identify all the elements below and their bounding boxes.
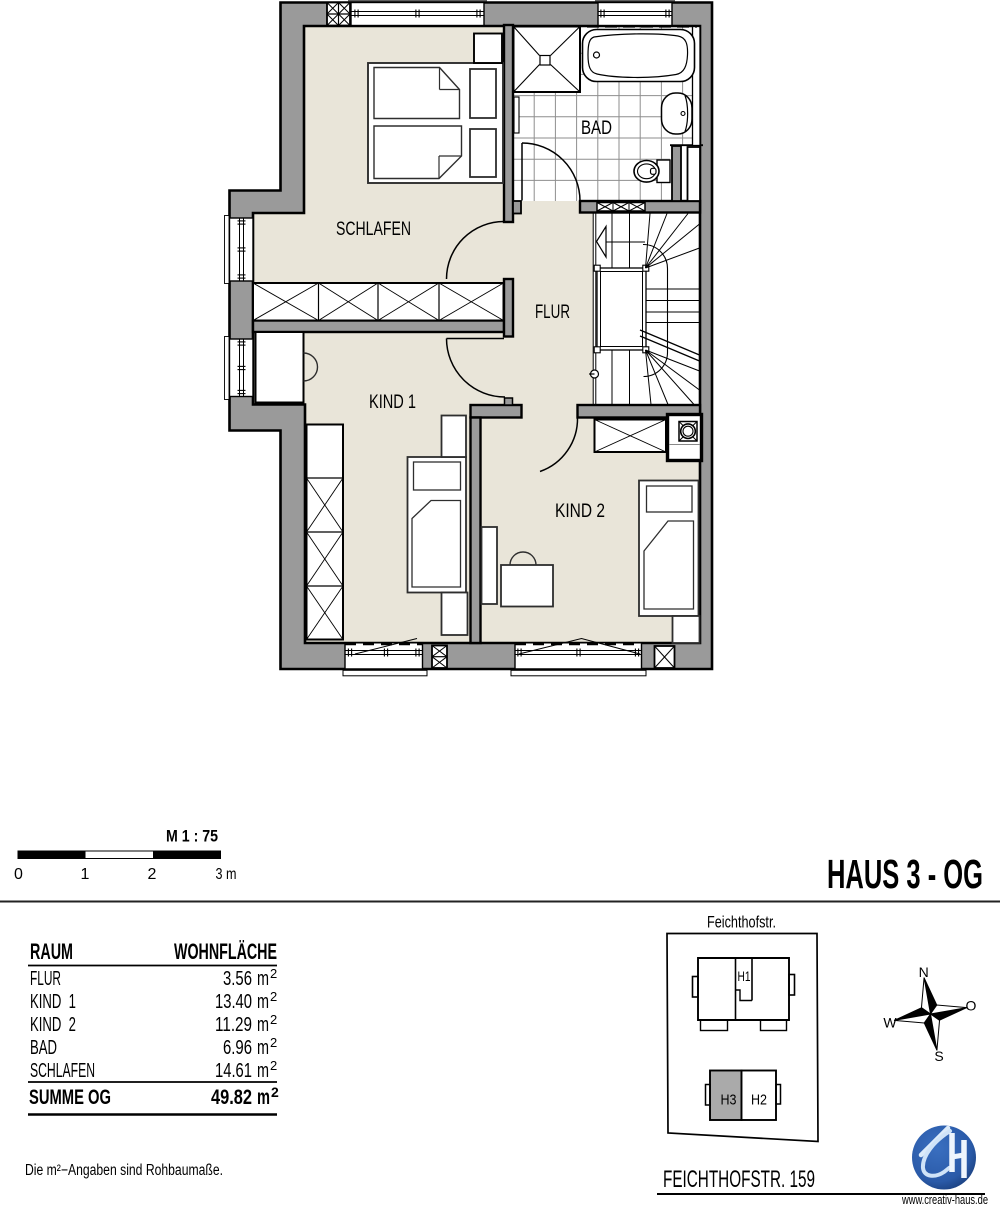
svg-text:6.96: 6.96 — [223, 1036, 252, 1059]
svg-text:11.29: 11.29 — [215, 1013, 252, 1036]
svg-text:13.40: 13.40 — [215, 990, 252, 1013]
svg-text:KIND 1: KIND 1 — [369, 392, 416, 413]
svg-text:2: 2 — [270, 1058, 277, 1073]
svg-text:m: m — [257, 1036, 269, 1059]
svg-text:Die m²−Angaben sind Rohbaumaße: Die m²−Angaben sind Rohbaumaße. — [25, 1162, 223, 1179]
svg-text:FLUR: FLUR — [535, 302, 570, 323]
svg-text:BAD: BAD — [581, 118, 612, 139]
svg-text:O: O — [966, 998, 977, 1014]
svg-text:m: m — [257, 1013, 269, 1036]
svg-text:2: 2 — [270, 1035, 277, 1050]
svg-text:0: 0 — [14, 866, 23, 883]
svg-text:FLUR: FLUR — [30, 967, 61, 990]
svg-text:KIND 2: KIND 2 — [30, 1013, 76, 1036]
svg-text:2: 2 — [270, 1012, 277, 1027]
svg-text:m: m — [257, 967, 269, 990]
svg-text:3.56: 3.56 — [223, 967, 252, 990]
svg-text:HAUS 3 - OG: HAUS 3 - OG — [827, 851, 983, 897]
svg-text:SUMME OG: SUMME OG — [29, 1086, 111, 1109]
svg-text:BAD: BAD — [30, 1036, 57, 1059]
svg-text:m: m — [257, 1059, 269, 1082]
svg-text:KIND 1: KIND 1 — [30, 990, 76, 1013]
svg-text:m: m — [257, 990, 269, 1013]
svg-text:www.creativ-haus.de: www.creativ-haus.de — [901, 1193, 988, 1206]
svg-text:14.61: 14.61 — [215, 1059, 252, 1082]
svg-text:2: 2 — [148, 866, 157, 883]
svg-text:2: 2 — [270, 966, 277, 981]
svg-text:H2: H2 — [751, 1092, 767, 1109]
svg-text:KIND 2: KIND 2 — [555, 501, 605, 522]
svg-text:S: S — [934, 1048, 943, 1064]
svg-text:N: N — [919, 964, 929, 980]
svg-text:49.82: 49.82 — [211, 1086, 252, 1109]
svg-text:M 1 : 75: M 1 : 75 — [166, 827, 218, 846]
svg-text:FEICHTHOFSTR. 159: FEICHTHOFSTR. 159 — [663, 1166, 815, 1193]
svg-text:W: W — [883, 1015, 897, 1031]
svg-text:SCHLAFEN: SCHLAFEN — [30, 1059, 95, 1082]
svg-text:H1: H1 — [738, 968, 751, 984]
svg-text:Feichthofstr.: Feichthofstr. — [707, 913, 776, 932]
svg-text:3 m: 3 m — [216, 866, 237, 883]
svg-text:RAUM: RAUM — [30, 939, 73, 964]
svg-text:1: 1 — [81, 866, 90, 883]
svg-text:WOHNFLÄCHE: WOHNFLÄCHE — [174, 939, 277, 964]
svg-text:2: 2 — [271, 1084, 279, 1100]
svg-text:SCHLAFEN: SCHLAFEN — [336, 219, 411, 240]
svg-text:H3: H3 — [721, 1092, 737, 1109]
svg-text:2: 2 — [270, 989, 277, 1004]
svg-text:m: m — [257, 1086, 270, 1109]
